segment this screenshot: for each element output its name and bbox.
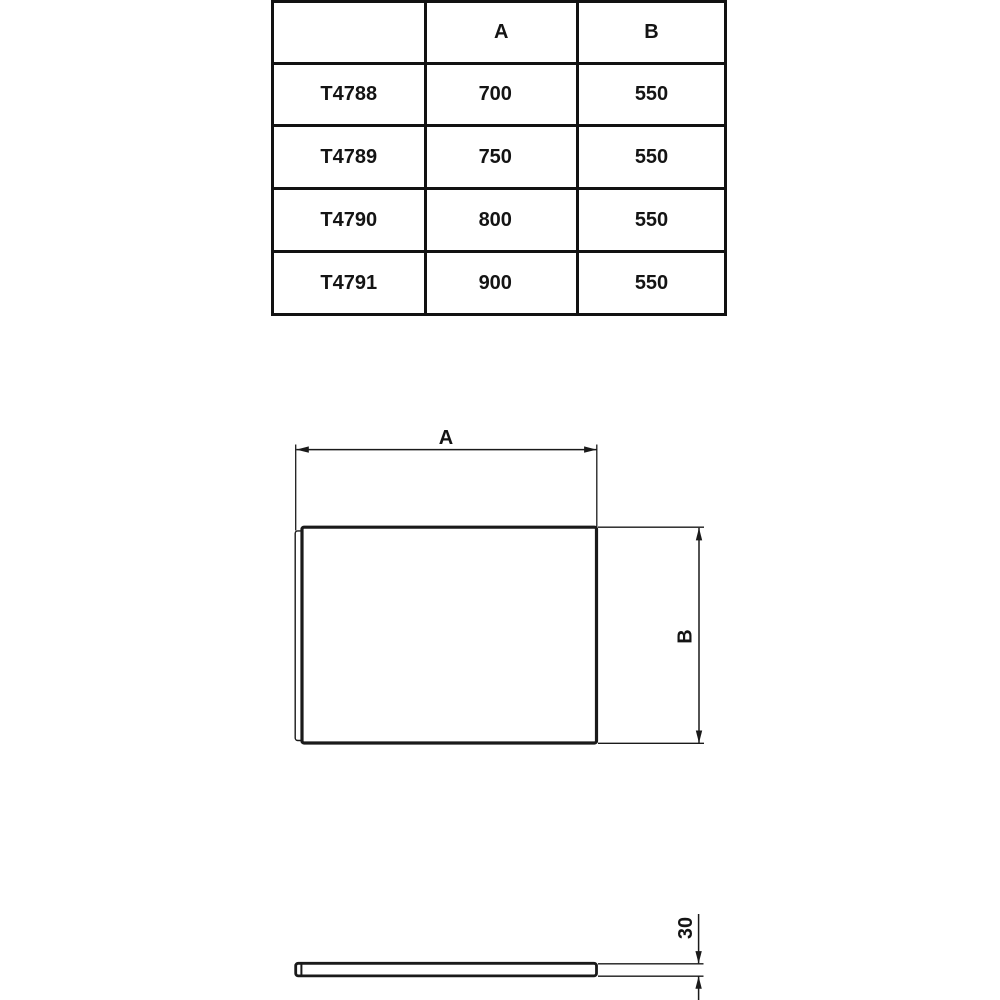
svg-text:A: A	[439, 427, 453, 449]
svg-text:30: 30	[675, 917, 697, 939]
svg-text:B: B	[675, 629, 697, 643]
